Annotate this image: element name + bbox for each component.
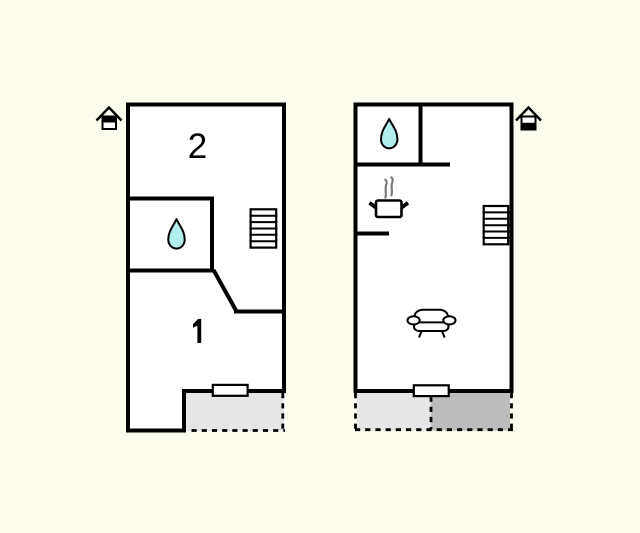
svg-text:2: 2 [188, 127, 207, 166]
